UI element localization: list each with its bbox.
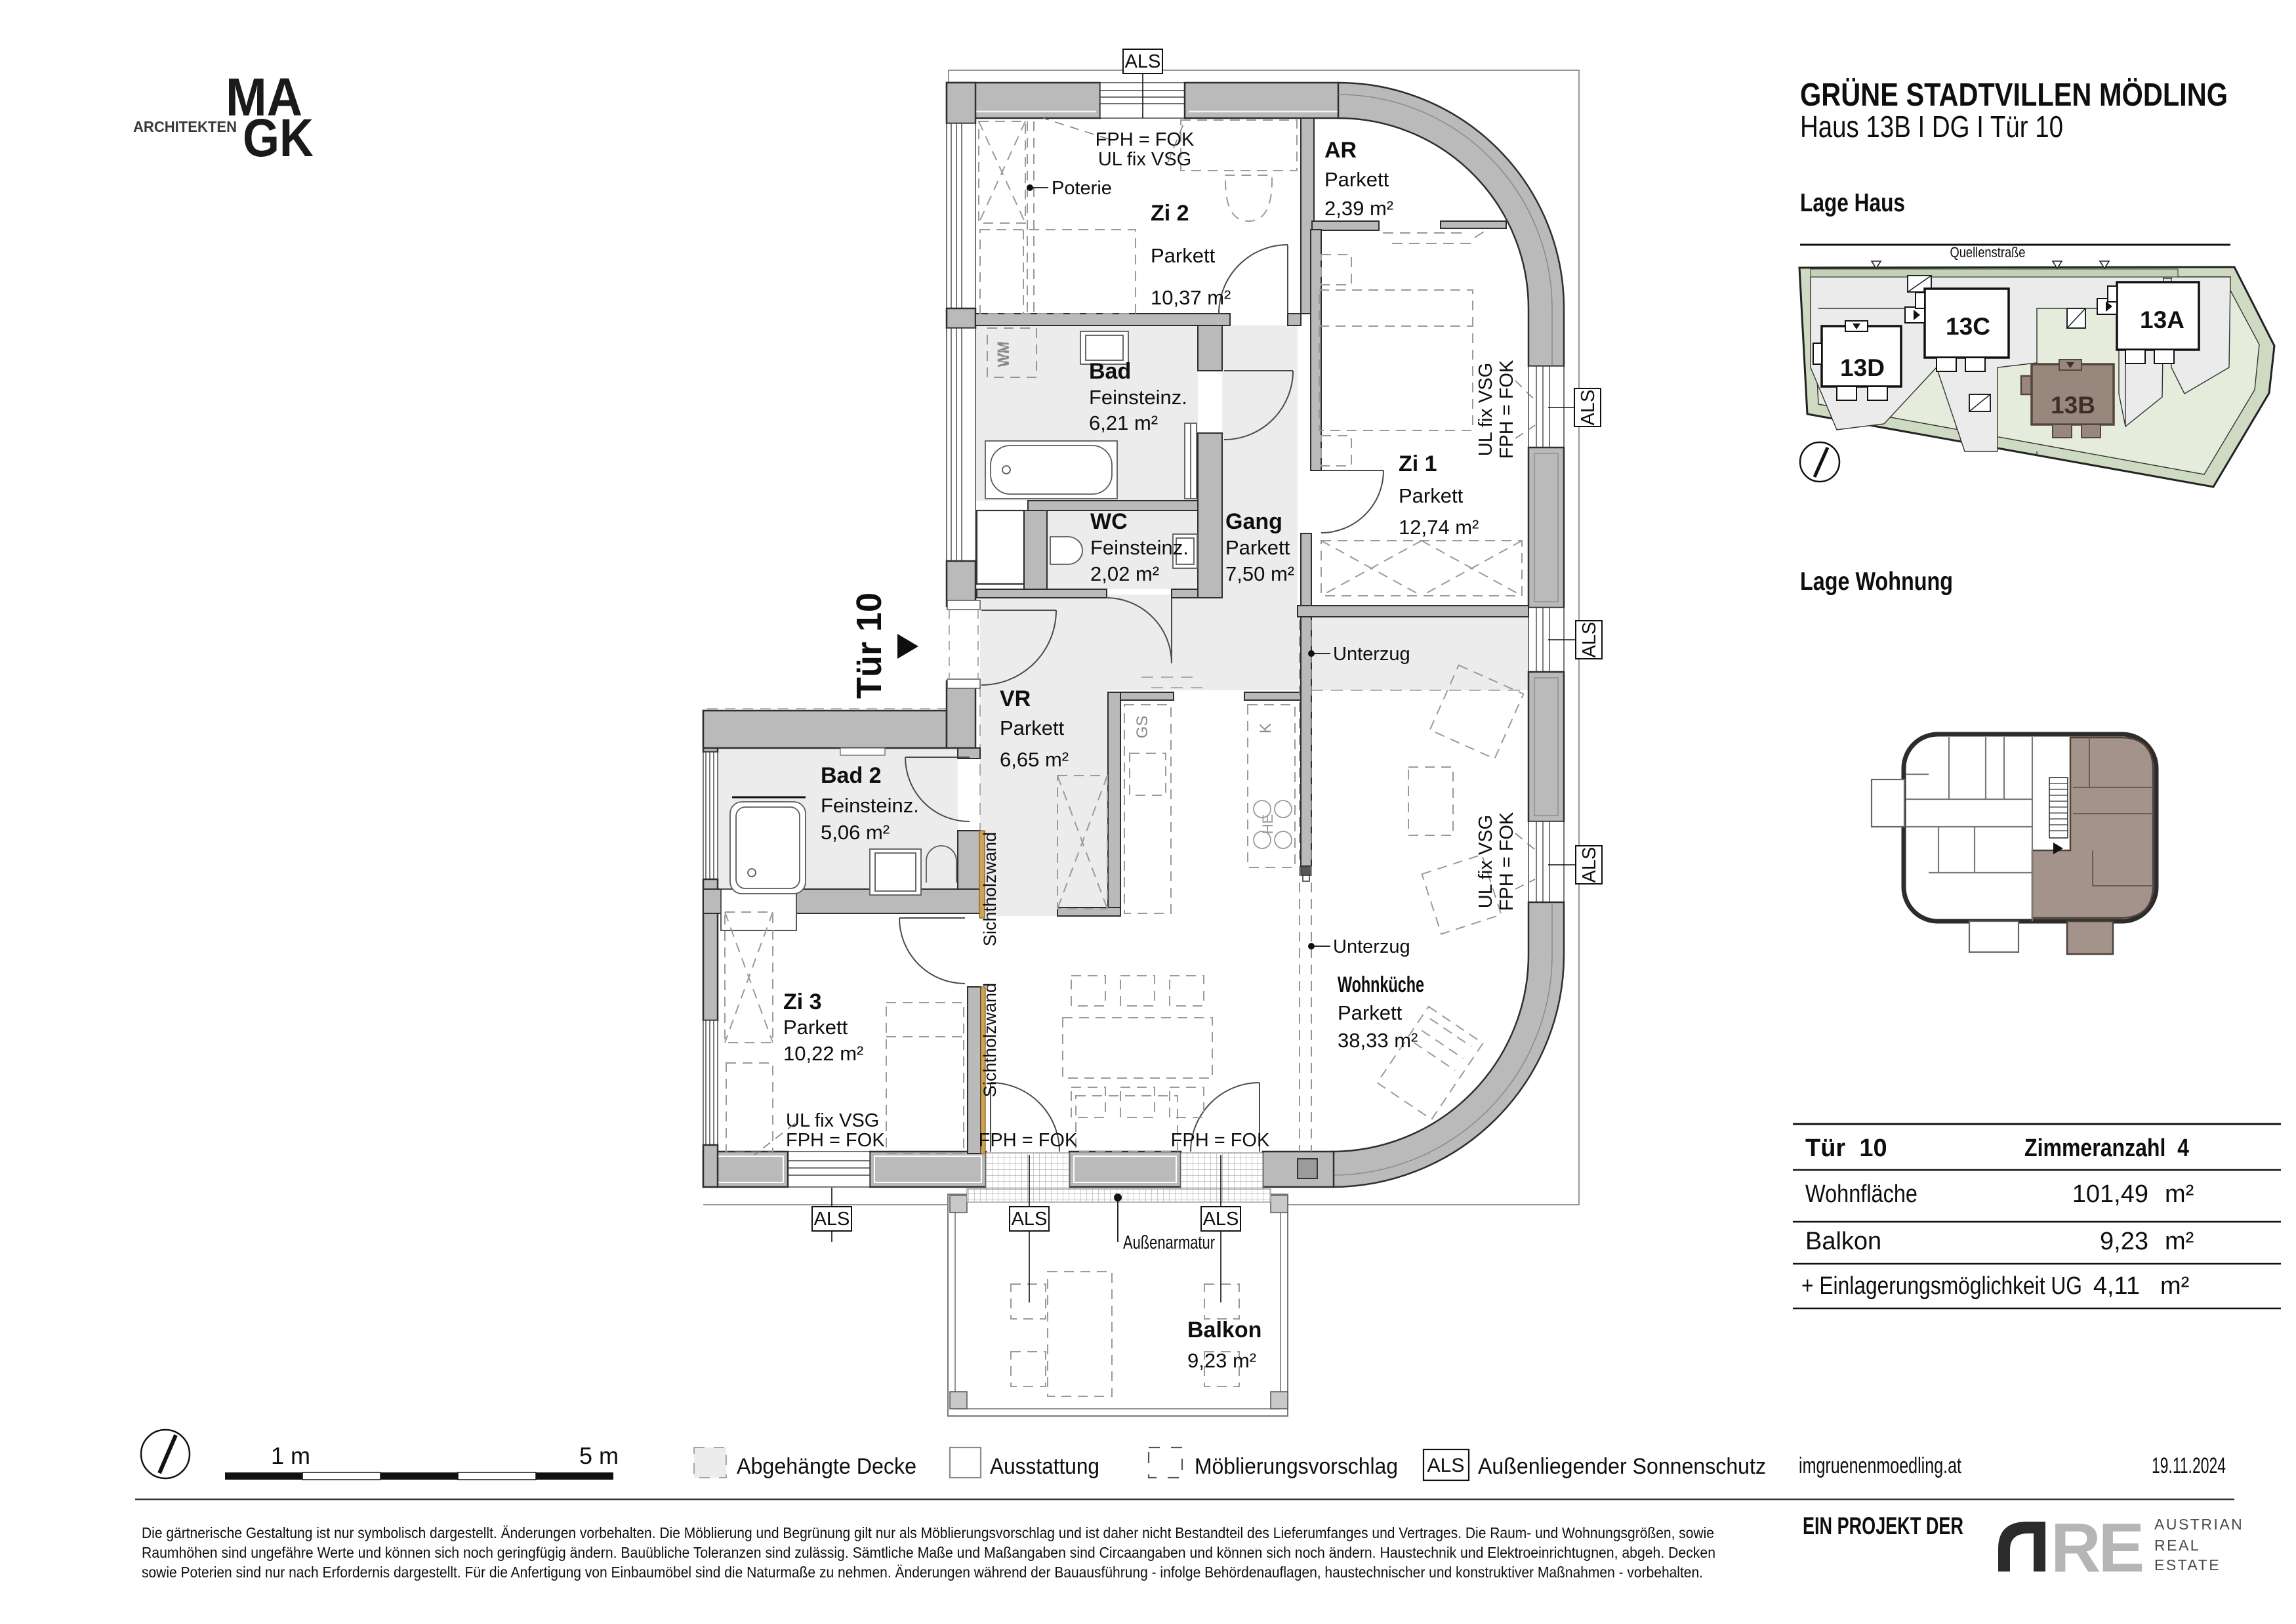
svg-text:2,39 m²: 2,39 m² — [1324, 197, 1393, 220]
svg-text:m²: m² — [2165, 1180, 2194, 1208]
svg-text:Haus 13B I DG I Tür 10: Haus 13B I DG I Tür 10 — [1800, 110, 2063, 144]
svg-text:VR: VR — [1000, 686, 1031, 711]
svg-text:13B: 13B — [2051, 392, 2095, 419]
svg-text:ALS: ALS — [1578, 390, 1599, 426]
svg-text:Balkon: Balkon — [1187, 1318, 1261, 1343]
svg-text:UL fix VSG: UL fix VSG — [1475, 815, 1496, 908]
svg-text:9,23 m²: 9,23 m² — [1187, 1349, 1256, 1372]
svg-text:GRÜNE STADTVILLEN MÖDLING: GRÜNE STADTVILLEN MÖDLING — [1800, 77, 2228, 113]
svg-text:13D: 13D — [1840, 354, 1885, 381]
svg-text:Feinsteinz.: Feinsteinz. — [1089, 386, 1187, 409]
svg-text:HE: HE — [1260, 814, 1276, 835]
svg-text:5 m: 5 m — [579, 1442, 619, 1469]
svg-text:Gang: Gang — [1225, 509, 1282, 534]
svg-text:AR: AR — [1324, 138, 1357, 163]
svg-text:imgruenenmoedling.at: imgruenenmoedling.at — [1799, 1453, 1961, 1478]
svg-text:2,02 m²: 2,02 m² — [1090, 562, 1159, 585]
svg-text:ALS: ALS — [1125, 51, 1161, 72]
svg-text:Sichtholzwand: Sichtholzwand — [980, 983, 1000, 1097]
svg-text:sowie Poterien sind nur nach E: sowie Poterien sind nur nach Erfordernis… — [142, 1564, 1703, 1581]
svg-text:Lage Haus: Lage Haus — [1800, 189, 1905, 217]
svg-text:Parkett: Parkett — [1338, 1001, 1403, 1024]
svg-text:AUSTRIAN: AUSTRIAN — [2154, 1516, 2244, 1533]
svg-text:5,06 m²: 5,06 m² — [821, 821, 890, 844]
svg-text:Abgehängte Decke: Abgehängte Decke — [737, 1454, 916, 1479]
svg-text:13C: 13C — [1946, 313, 1990, 340]
svg-text:Tür 10: Tür 10 — [1805, 1135, 1887, 1162]
svg-text:FPH = FOK: FPH = FOK — [1496, 360, 1517, 459]
svg-text:GK: GK — [243, 108, 314, 168]
svg-text:Bad: Bad — [1089, 359, 1131, 384]
svg-text:Außenarmatur: Außenarmatur — [1123, 1232, 1215, 1253]
svg-text:Parkett: Parkett — [1399, 484, 1464, 507]
svg-text:FPH = FOK: FPH = FOK — [1496, 812, 1517, 911]
svg-text:Parkett: Parkett — [1151, 244, 1216, 267]
svg-text:EIN PROJEKT DER: EIN PROJEKT DER — [1803, 1512, 1963, 1539]
svg-text:12,74 m²: 12,74 m² — [1399, 516, 1479, 539]
svg-text:13A: 13A — [2140, 306, 2184, 333]
svg-text:Zimmeranzahl 4: Zimmeranzahl 4 — [2024, 1135, 2189, 1162]
svg-text:ALS: ALS — [1012, 1209, 1048, 1230]
svg-text:m²: m² — [2160, 1272, 2189, 1300]
svg-text:Die gärtnerische Gestaltung is: Die gärtnerische Gestaltung ist nur symb… — [142, 1524, 1714, 1541]
svg-text:WM: WM — [995, 341, 1012, 367]
svg-text:UL fix VSG: UL fix VSG — [1098, 149, 1191, 170]
svg-text:Tür 10: Tür 10 — [850, 593, 889, 699]
svg-text:Feinsteinz.: Feinsteinz. — [1090, 536, 1189, 559]
svg-text:10,22 m²: 10,22 m² — [783, 1042, 863, 1065]
svg-text:Feinsteinz.: Feinsteinz. — [821, 794, 919, 817]
svg-text:Poterie: Poterie — [1052, 178, 1112, 199]
svg-text:7,50 m²: 7,50 m² — [1225, 562, 1294, 585]
svg-text:ALS: ALS — [1579, 622, 1600, 658]
svg-text:Ausstattung: Ausstattung — [990, 1454, 1099, 1479]
svg-text:ESTATE: ESTATE — [2154, 1556, 2221, 1573]
svg-text:Wohnfläche: Wohnfläche — [1805, 1180, 1917, 1208]
svg-text:m²: m² — [2165, 1228, 2194, 1255]
svg-text:Bad 2: Bad 2 — [821, 763, 882, 788]
svg-text:ALS: ALS — [814, 1209, 850, 1230]
svg-text:Zi 3: Zi 3 — [783, 989, 822, 1014]
svg-text:FPH = FOK: FPH = FOK — [786, 1130, 885, 1151]
svg-text:10,37 m²: 10,37 m² — [1151, 286, 1231, 309]
svg-text:9,23: 9,23 — [2100, 1228, 2148, 1255]
svg-text:Zi 1: Zi 1 — [1399, 451, 1437, 476]
svg-text:Lage Wohnung: Lage Wohnung — [1800, 568, 1953, 596]
svg-text:GS: GS — [1134, 716, 1151, 739]
svg-text:ALS: ALS — [1203, 1209, 1239, 1230]
svg-text:6,21 m²: 6,21 m² — [1089, 411, 1158, 434]
svg-text:Möblierungsvorschlag: Möblierungsvorschlag — [1195, 1454, 1398, 1479]
svg-text:Sichtholzwand: Sichtholzwand — [980, 832, 1000, 946]
svg-text:38,33 m²: 38,33 m² — [1338, 1029, 1418, 1052]
svg-text:RE: RE — [2051, 1509, 2142, 1587]
svg-text:UL fix VSG: UL fix VSG — [1475, 363, 1496, 456]
svg-text:Zi 2: Zi 2 — [1151, 201, 1189, 226]
svg-text:+ Einlagerungsmöglichkeit UG: + Einlagerungsmöglichkeit UG — [1801, 1272, 2082, 1300]
svg-text:19.11.2024: 19.11.2024 — [2152, 1453, 2226, 1478]
svg-text:Unterzug: Unterzug — [1333, 936, 1410, 957]
svg-text:1 m: 1 m — [271, 1442, 310, 1469]
svg-text:Parkett: Parkett — [1000, 717, 1065, 739]
svg-text:REAL: REAL — [2154, 1537, 2200, 1554]
svg-text:Parkett: Parkett — [783, 1016, 848, 1039]
svg-text:Parkett: Parkett — [1324, 168, 1389, 191]
svg-text:FPH = FOK: FPH = FOK — [1171, 1130, 1270, 1151]
svg-text:Außenliegender Sonnenschutz: Außenliegender Sonnenschutz — [1478, 1454, 1766, 1479]
svg-text:101,49: 101,49 — [2072, 1180, 2148, 1208]
svg-text:Wohnküche: Wohnküche — [1338, 972, 1424, 997]
svg-text:Parkett: Parkett — [1225, 536, 1290, 559]
svg-text:Raumhöhen sind ungefähre Werte: Raumhöhen sind ungefähre Werte und könne… — [142, 1544, 1715, 1561]
svg-text:Quellenstraße: Quellenstraße — [1950, 244, 2026, 260]
svg-text:4,11: 4,11 — [2093, 1272, 2140, 1300]
svg-text:UL fix VSG: UL fix VSG — [786, 1110, 879, 1131]
svg-text:FPH = FOK: FPH = FOK — [979, 1130, 1078, 1151]
svg-text:WC: WC — [1090, 509, 1128, 534]
svg-text:K: K — [1257, 723, 1275, 734]
svg-text:Balkon: Balkon — [1805, 1228, 1881, 1255]
svg-text:ALS: ALS — [1579, 847, 1600, 883]
svg-text:Unterzug: Unterzug — [1333, 644, 1410, 665]
svg-text:ARCHITEKTEN: ARCHITEKTEN — [133, 118, 237, 135]
svg-text:ALS: ALS — [1427, 1455, 1465, 1476]
svg-text:6,65 m²: 6,65 m² — [1000, 748, 1069, 771]
